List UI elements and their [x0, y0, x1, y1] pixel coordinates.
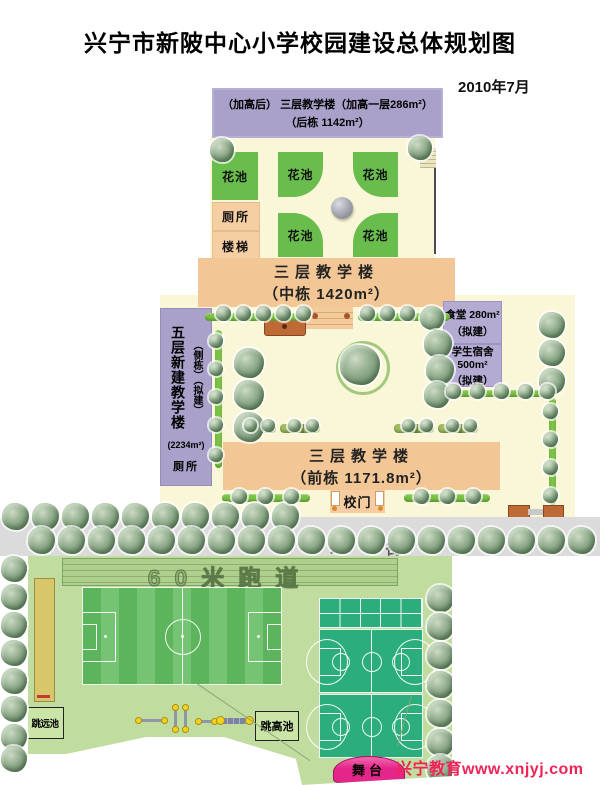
high-jump-label: 跳高池: [261, 718, 294, 734]
bush-icon: [543, 488, 558, 503]
flower-bed-label: 花池: [362, 227, 388, 244]
bush-icon: [244, 419, 257, 432]
tree-icon: [92, 503, 119, 530]
tree-icon: [1, 640, 27, 666]
running-track: 60米跑道: [62, 558, 398, 586]
bush-icon: [446, 384, 461, 399]
takeoff-board-icon: [37, 695, 50, 698]
tree-icon: [2, 503, 29, 530]
tree-icon: [427, 642, 454, 669]
penalty-spot-icon: [104, 635, 107, 638]
bush-icon: [470, 384, 485, 399]
bush-icon: [466, 489, 481, 504]
bush-icon: [209, 418, 223, 432]
tree-icon: [58, 527, 85, 554]
tree-icon: [427, 585, 454, 612]
bush-icon: [464, 419, 477, 432]
long-jump-pit: 跳远池: [26, 707, 64, 739]
page-title: 兴宁市新陂中心小学校园建设总体规划图: [0, 24, 600, 58]
tree-icon: [1, 668, 27, 694]
tree-icon: [427, 613, 454, 640]
flower-bed-label: 花池: [287, 166, 313, 183]
tree-icon: [508, 527, 535, 554]
tree-icon: [208, 527, 235, 554]
tree-icon: [272, 503, 299, 530]
bush-icon: [360, 306, 375, 321]
side-building-note: （侧栋）（拟建）: [189, 340, 204, 415]
bush-icon: [420, 419, 433, 432]
tree-icon: [242, 503, 269, 530]
tree-icon: [539, 312, 565, 338]
bush-icon: [232, 489, 247, 504]
stairwell: 楼梯: [212, 231, 260, 261]
center-spot-icon: [181, 635, 184, 638]
middle-building-area: （中栋 1420m²）: [263, 283, 390, 304]
back-teaching-building: （加高后） 三层教学楼（加高一层286m²） （后栋 1142m²）: [212, 88, 443, 138]
bush-icon: [256, 306, 271, 321]
tree-icon: [358, 527, 385, 554]
tree-icon: [478, 527, 505, 554]
tree-icon: [182, 503, 209, 530]
canteen-note: （拟建）: [452, 324, 494, 339]
bush-icon: [543, 404, 558, 419]
stage-label: 舞台: [352, 760, 386, 779]
bush-icon: [306, 419, 319, 432]
campus-master-plan: 兴宁市新陂中心小学校园建设总体规划图 2010年7月 （加高后） 三层教学楼（加…: [0, 0, 600, 785]
long-jump-label: 跳远池: [31, 716, 58, 730]
front-building-label: 三层教学楼: [309, 445, 414, 466]
tree-icon: [178, 527, 205, 554]
bush-icon: [288, 419, 301, 432]
back-building-label: （加高后） 三层教学楼（加高一层286m²）: [222, 96, 433, 112]
plan-date: 2010年7月: [458, 76, 530, 97]
bush-icon: [276, 306, 291, 321]
stage: 舞台: [333, 756, 405, 783]
bush-icon: [518, 384, 533, 399]
tree-icon: [234, 348, 264, 378]
tree-icon: [152, 503, 179, 530]
basketball-court: [319, 694, 423, 758]
bush-icon: [380, 306, 395, 321]
tree-icon: [539, 340, 565, 366]
table-line: [320, 613, 422, 614]
side-building-name: 五层新建教学楼: [168, 325, 188, 430]
watermark: 兴宁教育www.xnjyj.com: [396, 755, 584, 779]
bush-icon: [400, 306, 415, 321]
bush-icon: [236, 306, 251, 321]
side-building-toilet: 厕所: [173, 458, 199, 474]
long-jump-runway: [34, 578, 55, 702]
tree-icon: [238, 527, 265, 554]
tree-icon: [1, 584, 27, 610]
bush-icon: [209, 448, 223, 462]
sphere-sculpture-icon: [331, 197, 353, 219]
tree-icon: [328, 527, 355, 554]
bush-icon: [543, 460, 558, 475]
canteen-building: 食堂 280m² （拟建）: [443, 301, 502, 344]
toilet-room: 厕所: [212, 202, 260, 231]
tree-icon: [298, 527, 325, 554]
tree-icon: [568, 527, 595, 554]
bush-icon: [402, 419, 415, 432]
canteen-label: 食堂 280m²: [445, 307, 499, 322]
table-tennis-area: [319, 598, 423, 628]
tree-icon: [210, 138, 234, 162]
tree-icon: [448, 527, 475, 554]
tree-icon: [427, 700, 454, 727]
pitch-goal-area: [267, 624, 281, 650]
tree-icon: [28, 527, 55, 554]
bush-icon: [209, 390, 223, 404]
tree-icon: [1, 612, 27, 638]
bush-icon: [216, 306, 231, 321]
school-gate: 校门: [330, 490, 385, 513]
tree-icon: [1, 696, 27, 722]
tree-icon: [32, 503, 59, 530]
front-building-area: （前栋 1171.8m²）: [291, 467, 432, 488]
bush-icon: [258, 489, 273, 504]
tree-icon: [122, 503, 149, 530]
side-teaching-building: 五层新建教学楼 （侧栋）（拟建） (2234m²) 厕所: [160, 308, 212, 486]
tree-icon: [424, 330, 452, 358]
boundary-wall: [434, 168, 436, 254]
flower-bed-label: 花池: [362, 166, 388, 183]
tree-icon: [427, 671, 454, 698]
side-building-area: (2234m²): [167, 440, 204, 450]
tree-icon: [538, 527, 565, 554]
bush-icon: [440, 489, 455, 504]
flower-bed-label: 花池: [287, 227, 313, 244]
planter-dot-icon: [312, 313, 318, 319]
bush-icon: [209, 334, 223, 348]
basketball-court: [319, 629, 423, 693]
tree-icon: [148, 527, 175, 554]
tree-icon: [234, 380, 264, 410]
sports-ground: 60米跑道 跳远池 跳高池: [0, 556, 600, 785]
tree-icon: [268, 527, 295, 554]
tree-icon: [1, 746, 27, 772]
pitch-goal-area: [83, 624, 97, 650]
toilet-label: 厕所: [222, 208, 250, 225]
bush-icon: [446, 419, 459, 432]
flower-bed-label: 花池: [222, 168, 248, 185]
stairs-label: 楼梯: [222, 238, 250, 255]
tree-icon: [1, 556, 27, 582]
tree-icon: [62, 503, 89, 530]
tree-icon: [88, 527, 115, 554]
tree-icon: [118, 527, 145, 554]
fence-gate-icon: [528, 509, 543, 515]
bush-icon: [540, 384, 555, 399]
tree-icon: [212, 503, 239, 530]
middle-building-label: 三层教学楼: [274, 261, 379, 282]
bush-icon: [296, 306, 311, 321]
bush-icon: [209, 362, 223, 376]
middle-teaching-building: 三层教学楼 （中栋 1420m²）: [198, 258, 455, 307]
tree-icon: [418, 527, 445, 554]
bush-icon: [414, 489, 429, 504]
bush-icon: [284, 489, 299, 504]
front-teaching-building: 三层教学楼 （前栋 1171.8m²）: [223, 442, 500, 490]
tree-icon: [420, 306, 444, 330]
tree-icon: [388, 527, 415, 554]
back-building-area: （后栋 1142m²）: [285, 114, 369, 130]
tree-icon: [427, 729, 454, 756]
planter-dot-icon: [344, 313, 350, 319]
soccer-field: [82, 587, 282, 685]
tree-icon: [426, 356, 454, 384]
bush-icon: [262, 419, 275, 432]
bush-icon: [494, 384, 509, 399]
tree-icon: [340, 345, 380, 385]
penalty-spot-icon: [257, 635, 260, 638]
bush-icon: [543, 432, 558, 447]
tree-icon: [408, 136, 432, 160]
high-jump-pit: 跳高池: [255, 711, 299, 741]
gate-label: 校门: [330, 492, 385, 511]
